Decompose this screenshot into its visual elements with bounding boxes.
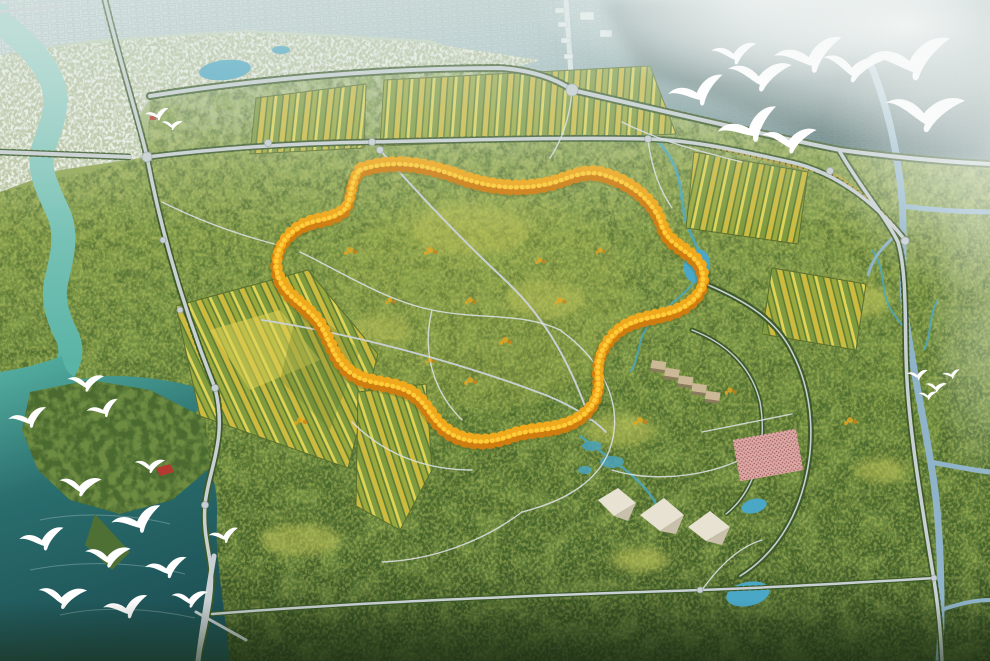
roundabout: [697, 587, 703, 593]
bottom-vignette: [0, 600, 990, 661]
roundabout: [177, 307, 183, 313]
roundabout: [931, 575, 937, 581]
rendering-canvas: [0, 0, 990, 661]
roundabout: [212, 385, 219, 392]
aerial-park-rendering: [0, 0, 990, 661]
roundabout: [202, 502, 209, 509]
roundabout: [160, 237, 166, 243]
